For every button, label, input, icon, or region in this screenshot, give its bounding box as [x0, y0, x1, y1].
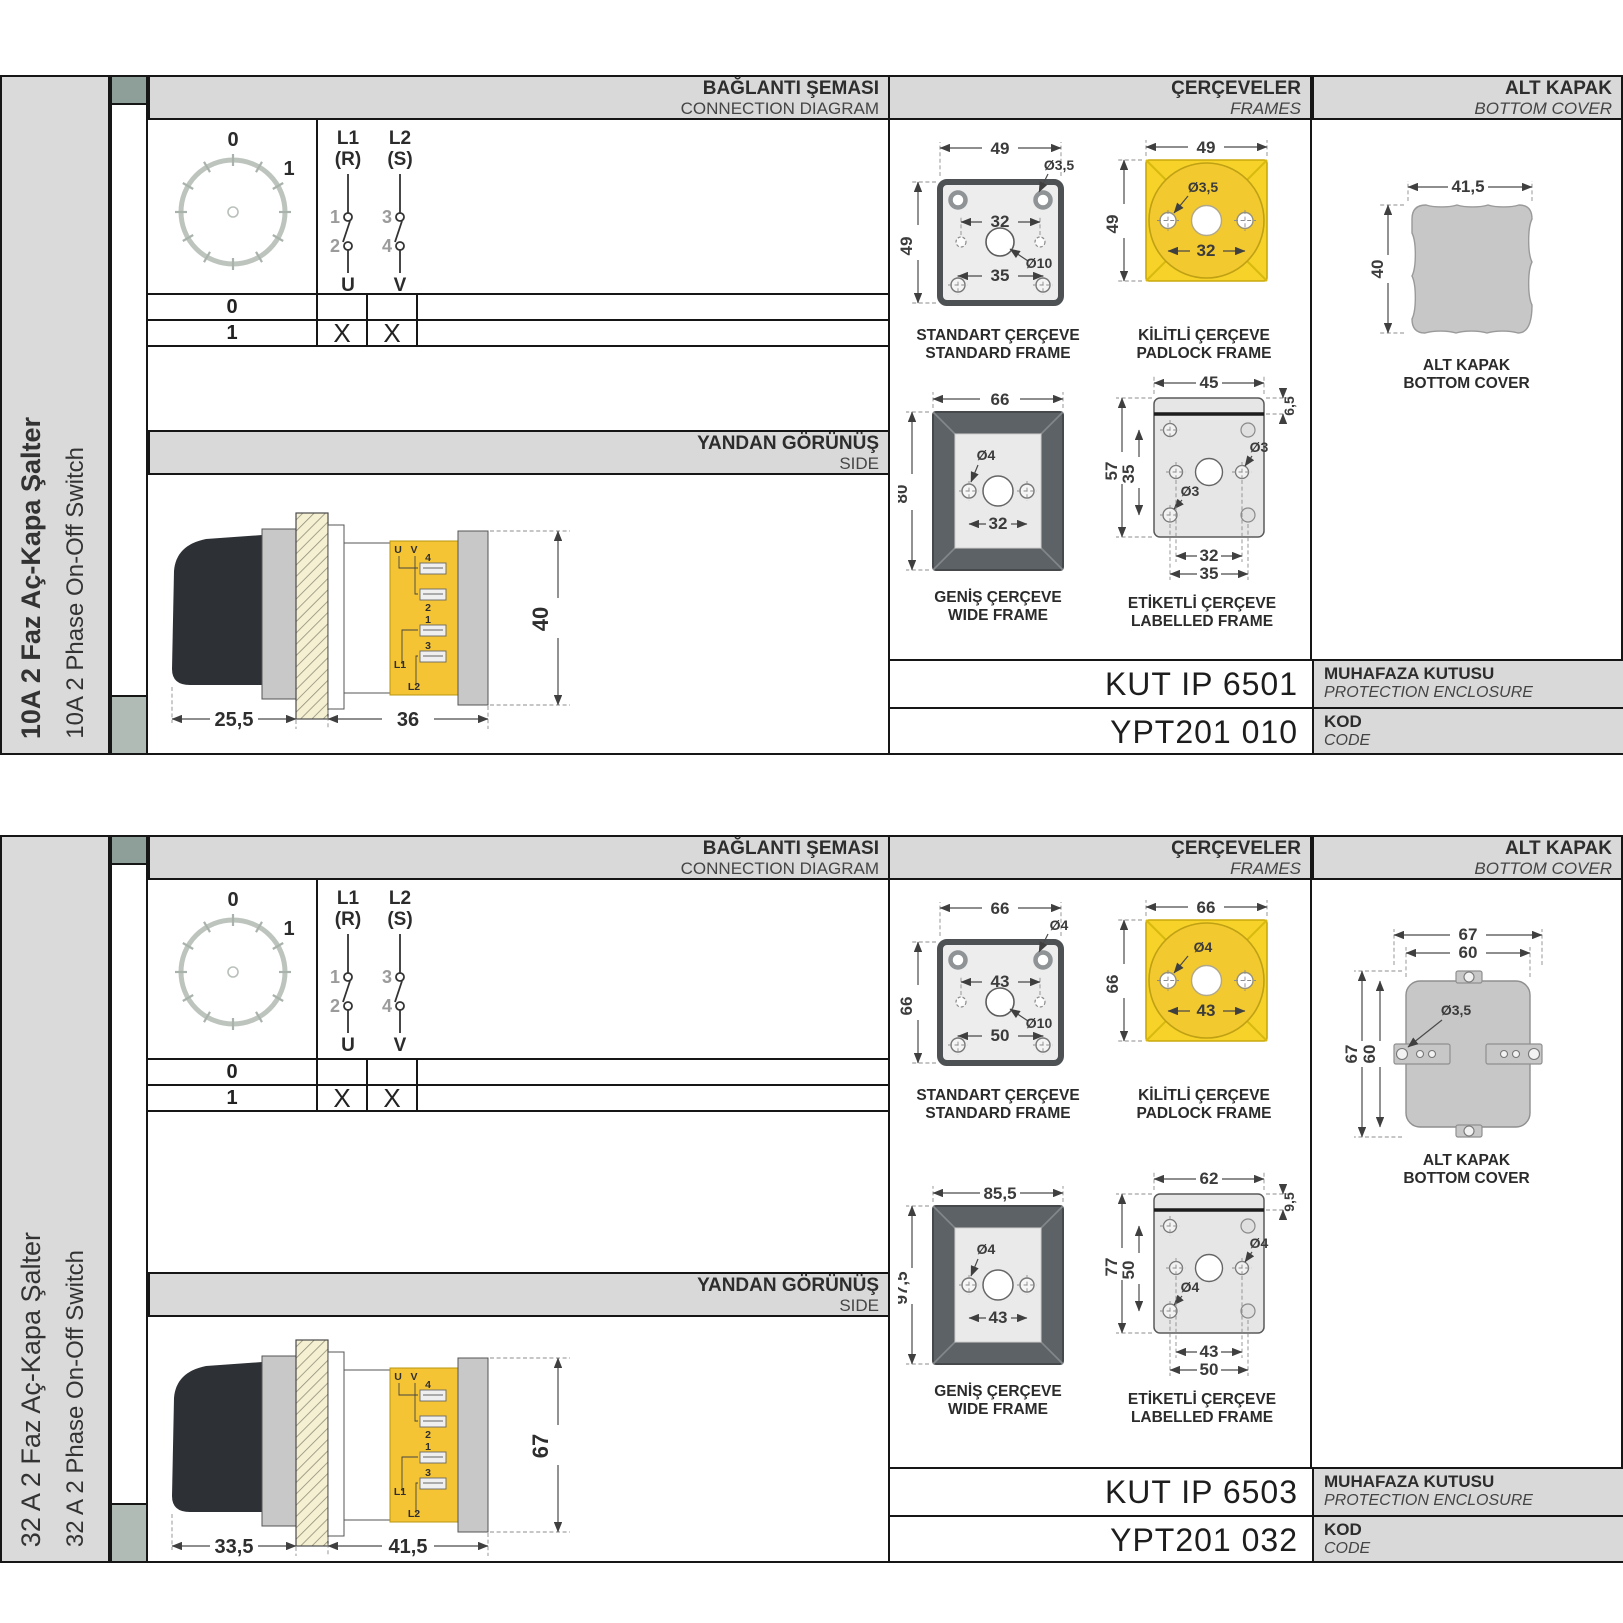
dim-height-outer: 67 — [1342, 1045, 1361, 1064]
caption-turkish: ETİKETLİ ÇERÇEVE — [1102, 1391, 1302, 1409]
position-cell: 1 — [148, 321, 318, 345]
bottom-cover-drawing: 41,5 40 — [1342, 175, 1592, 350]
header-turkish: YANDAN GÖRÜNÜŞ — [697, 1275, 879, 1296]
code-label: KOD CODE — [1312, 1517, 1623, 1563]
label-english: CODE — [1324, 1540, 1623, 1558]
figure-caption: STANDART ÇERÇEVE STANDARD FRAME — [898, 1087, 1098, 1123]
enclosure-code: KUT IP 6503 — [888, 1469, 1312, 1515]
dim-center-hole: Ø10 — [1026, 1015, 1053, 1031]
terminal-label-2: 2 — [425, 1429, 431, 1441]
header-turkish: ALT KAPAK — [1505, 78, 1612, 99]
spacer-bottom-square — [112, 1503, 146, 1561]
caption-turkish: GENİŞ ÇERÇEVE — [898, 1383, 1098, 1401]
bottom-cover-figure: 41,5 40 — [1342, 175, 1592, 393]
caption-english: WIDE FRAME — [898, 1401, 1098, 1419]
dim-inner-spacing: 43 — [1200, 1342, 1219, 1361]
table-row: 1 X X — [148, 321, 890, 345]
pole2-label: L2 — [389, 128, 411, 149]
pole1-label: L1 — [337, 128, 360, 149]
caption-turkish: KİLİTLİ ÇERÇEVE — [1104, 327, 1304, 345]
dim-depth-a: 25,5 — [215, 709, 254, 731]
header-english: SIDE — [839, 1296, 879, 1315]
pole1-sublabel: (R) — [335, 149, 361, 170]
padlock-frame-drawing: 49 49 Ø3,5 32 — [1104, 130, 1304, 320]
dim-center-hole: Ø10 — [1026, 255, 1053, 271]
terminal-number-3: 3 — [382, 207, 392, 227]
dim-outer-spacing: 50 — [1200, 1360, 1219, 1379]
label-turkish: KOD — [1324, 712, 1623, 732]
dim-width: 85,5 — [983, 1184, 1016, 1203]
mount-plate — [328, 1352, 344, 1536]
label-english: PROTECTION ENCLOSURE — [1324, 1492, 1623, 1510]
dim-height: 40 — [1368, 260, 1387, 279]
dim-hole: Ø4 — [977, 1241, 996, 1257]
dim-depth-b: 41,5 — [389, 1536, 428, 1558]
connection-diagram-header: BAĞLANTI ŞEMASI CONNECTION DIAGRAM — [148, 75, 890, 120]
figure-caption: STANDART ÇERÇEVE STANDARD FRAME — [898, 327, 1098, 363]
dim-band: 9,5 — [1281, 1192, 1297, 1212]
product-code: YPT201 010 — [888, 709, 1312, 755]
dim-inner-spacing: 32 — [1197, 241, 1216, 260]
dim-height-inner: 60 — [1360, 1045, 1379, 1064]
terminal-number-4: 4 — [382, 996, 392, 1016]
mount-plate — [328, 525, 344, 709]
dim-inner-spacing: 43 — [989, 1308, 1008, 1327]
enclosure-label: MUHAFAZA KUTUSU PROTECTION ENCLOSURE — [1312, 661, 1623, 707]
table-row: 1 X X — [148, 1086, 890, 1110]
header-english: BOTTOM COVER — [1474, 859, 1612, 878]
spacer-bottom-square — [112, 695, 146, 753]
switching-table: 0 1 X X — [148, 293, 890, 347]
dim-width-inner: 60 — [1458, 943, 1477, 962]
terminal-label-3: 3 — [425, 1467, 431, 1479]
dial-position-0: 0 — [227, 889, 238, 911]
output-v-label: V — [394, 275, 407, 295]
side-view-drawing: U V 4 2 1 3 L1 L2 67 33,5 41,5 — [150, 1300, 730, 1560]
center-hole — [1196, 459, 1223, 486]
header-turkish: BAĞLANTI ŞEMASI — [703, 838, 879, 859]
section-bottom-border — [0, 1561, 1623, 1563]
bottom-cover-area: 67 60 67 60 Ø3,5 ALT KAPAK BO — [1312, 880, 1623, 1467]
dial-ticks — [175, 154, 291, 270]
figure-caption: GENİŞ ÇERÇEVE WIDE FRAME — [898, 589, 1098, 625]
caption-english: LABELLED FRAME — [1102, 613, 1302, 631]
dial-position-1: 1 — [283, 918, 294, 940]
position-cell: 0 — [148, 1060, 318, 1084]
dim-inner-height: 35 — [1119, 465, 1138, 484]
label-english: CODE — [1324, 732, 1623, 750]
enclosure-row: KUT IP 6503 MUHAFAZA KUTUSU PROTECTION E… — [888, 1467, 1623, 1515]
section-bottom-border — [0, 753, 1623, 755]
dim-band: 6,5 — [1281, 396, 1297, 416]
pole1-label: L1 — [337, 888, 360, 909]
dim-hole-mid: Ø4 — [1250, 1235, 1269, 1251]
dial-position-0: 0 — [227, 129, 238, 151]
dim-width: 66 — [1197, 898, 1216, 917]
wide-frame-figure: 85,5 97,5 Ø4 43 GENİŞ ÇERÇEVE — [898, 1180, 1098, 1419]
dim-hole: Ø3,5 — [1188, 179, 1219, 195]
header-english: CONNECTION DIAGRAM — [681, 859, 879, 878]
terminal-label-v: V — [410, 544, 417, 556]
labelled-frame-drawing: 62 9,5 77 50 — [1102, 1164, 1307, 1384]
dim-inner-spacing: 32 — [1200, 546, 1219, 565]
padlock-frame-figure: 66 66 Ø4 43 KİLİTLİ ÇERÇEVE — [1104, 890, 1304, 1123]
dim-width: 66 — [991, 899, 1010, 918]
switch-handle — [172, 1362, 262, 1512]
label-turkish: MUHAFAZA KUTUSU — [1324, 1472, 1623, 1492]
product-section: 32 A 2 Faz Aç-Kapa Şalter 32 A 2 Phase O… — [0, 835, 1623, 1563]
dim-hole-bottom: Ø3 — [1181, 483, 1200, 499]
caption-english: STANDARD FRAME — [898, 345, 1098, 363]
bottom-cover-header: ALT KAPAK BOTTOM COVER — [1312, 835, 1623, 880]
pole2-sublabel: (S) — [387, 149, 412, 170]
header-english: SIDE — [839, 454, 879, 473]
spacer-column — [110, 75, 148, 755]
code-row: YPT201 010 KOD CODE — [888, 707, 1623, 755]
caption-turkish: STANDART ÇERÇEVE — [898, 1087, 1098, 1105]
dim-width: 62 — [1200, 1169, 1219, 1188]
switch-body — [344, 1370, 390, 1520]
product-code: YPT201 032 — [888, 1517, 1312, 1563]
switch-dial-drawing: 0 1 — [148, 120, 318, 295]
standard-frame-drawing: 49 49 Ø3,5 — [898, 130, 1098, 320]
header-turkish: ALT KAPAK — [1505, 838, 1612, 859]
v-cell — [368, 1060, 418, 1084]
dim-lower-spacing: 50 — [991, 1026, 1010, 1045]
caption-english: PADLOCK FRAME — [1104, 1105, 1304, 1123]
header-english: FRAMES — [1230, 99, 1301, 118]
center-hole — [1196, 1255, 1223, 1282]
panel-hatched — [296, 513, 328, 719]
bottom-cover-drawing: 67 60 67 60 Ø3,5 — [1342, 925, 1592, 1145]
pole1-sublabel: (R) — [335, 909, 361, 930]
figure-caption: ETİKETLİ ÇERÇEVE LABELLED FRAME — [1102, 1391, 1302, 1427]
dim-depth-b: 36 — [397, 709, 419, 731]
u-cell — [318, 295, 368, 319]
dim-width: 49 — [1197, 138, 1216, 157]
pole2-contacts — [395, 174, 404, 273]
contact-diagram-cell: L1 (R) L2 (S) 1 2 3 4 U V — [318, 880, 888, 1055]
bottom-cover-header: ALT KAPAK BOTTOM COVER — [1312, 75, 1623, 120]
caption-english: LABELLED FRAME — [1102, 1409, 1302, 1427]
terminal-label-l1: L1 — [394, 659, 406, 671]
caption-english: BOTTOM COVER — [1342, 1170, 1592, 1188]
height-dimension: 40 — [490, 531, 570, 705]
code-label: KOD CODE — [1312, 709, 1623, 755]
bottom-cover-figure: 67 60 67 60 Ø3,5 ALT KAPAK BO — [1342, 925, 1592, 1188]
terminal-label-3: 3 — [425, 640, 431, 652]
side-view-header: YANDAN GÖRÜNÜŞ SIDE — [148, 430, 890, 475]
dim-lower-spacing: 35 — [991, 266, 1010, 285]
labelled-frame-drawing: 45 6,5 57 35 — [1102, 368, 1307, 588]
dim-inner-height: 50 — [1119, 1261, 1138, 1280]
header-english: CONNECTION DIAGRAM — [681, 99, 879, 118]
pole1-contacts — [343, 934, 352, 1033]
dim-hole: Ø3,5 — [1440, 1002, 1471, 1018]
dim-corner-hole: Ø3,5 — [1044, 157, 1075, 173]
spacer-top-square — [112, 837, 146, 865]
frames-area: 49 49 Ø3,5 — [888, 120, 1312, 659]
front-plate — [262, 1356, 296, 1526]
frames-header: ÇERÇEVELER FRAMES — [888, 835, 1312, 880]
caption-turkish: KİLİTLİ ÇERÇEVE — [1104, 1087, 1304, 1105]
pole2-label: L2 — [389, 888, 411, 909]
center-hole — [986, 988, 1014, 1016]
spacer-column — [110, 835, 148, 1563]
dim-height: 67 — [528, 1434, 553, 1458]
dim-width: 45 — [1200, 373, 1219, 392]
caption-english: STANDARD FRAME — [898, 1105, 1098, 1123]
terminal-label-l1: L1 — [394, 1486, 406, 1498]
table-row: 0 — [148, 295, 890, 321]
switch-handle — [172, 535, 262, 685]
center-hole — [986, 228, 1014, 256]
dim-outer-spacing: 35 — [1200, 564, 1219, 583]
padlock-frame-figure: 49 49 Ø3,5 32 KİLİTLİ ÇERÇEVE — [1104, 130, 1304, 363]
terminal-number-2: 2 — [330, 996, 340, 1016]
standard-frame-figure: 49 49 Ø3,5 — [898, 130, 1098, 363]
figure-caption: KİLİTLİ ÇERÇEVE PADLOCK FRAME — [1104, 327, 1304, 363]
caption-english: WIDE FRAME — [898, 607, 1098, 625]
dim-depth-a: 33,5 — [215, 1536, 254, 1558]
terminal-label-4: 4 — [425, 1379, 431, 1391]
panel-hatched — [296, 1340, 328, 1546]
labelled-frame-figure: 62 9,5 77 50 — [1102, 1164, 1302, 1427]
dim-inner-spacing: 43 — [1197, 1001, 1216, 1020]
contact-diagram: L1 (R) L2 (S) 1 2 3 4 U V — [318, 880, 888, 1055]
terminal-label-u: U — [394, 1371, 402, 1383]
u-cell-x: X — [318, 321, 368, 345]
label-english: PROTECTION ENCLOSURE — [1324, 684, 1623, 702]
pole2-contacts — [395, 934, 404, 1033]
header-turkish: BAĞLANTI ŞEMASI — [703, 78, 879, 99]
side-view-drawing: U V 4 2 1 3 L1 L2 40 25,5 36 — [150, 473, 730, 733]
labelled-frame-figure: 45 6,5 57 35 — [1102, 368, 1302, 631]
center-hole — [1192, 966, 1222, 996]
terminal-label-u: U — [394, 544, 402, 556]
dial-position-1: 1 — [283, 158, 294, 180]
dim-hole: Ø4 — [1194, 939, 1213, 955]
dim-width: 49 — [991, 139, 1010, 158]
figure-caption: ALT KAPAK BOTTOM COVER — [1342, 1152, 1592, 1188]
center-hole — [1192, 206, 1222, 236]
standard-frame-figure: 66 66 Ø4 — [898, 890, 1098, 1123]
dim-width: 41,5 — [1451, 177, 1484, 196]
caption-turkish: ALT KAPAK — [1342, 357, 1592, 375]
terminal-number-3: 3 — [382, 967, 392, 987]
terminal-label-1: 1 — [425, 614, 431, 626]
connection-diagram-header: BAĞLANTI ŞEMASI CONNECTION DIAGRAM — [148, 835, 890, 880]
dial-ticks — [175, 914, 291, 1030]
height-dimension: 67 — [490, 1358, 570, 1532]
u-cell-x: X — [318, 1086, 368, 1110]
table-row: 0 — [148, 1060, 890, 1086]
terminal-number-4: 4 — [382, 236, 392, 256]
switch-dial-drawing: 0 1 — [148, 880, 318, 1055]
wide-frame-drawing: 66 80 Ø4 32 — [898, 386, 1098, 582]
contact-diagram: L1 (R) L2 (S) 1 2 3 4 U V — [318, 120, 888, 295]
frames-header: ÇERÇEVELER FRAMES — [888, 75, 1312, 120]
dim-width: 66 — [991, 390, 1010, 409]
dim-height: 66 — [1104, 975, 1122, 994]
caption-english: BOTTOM COVER — [1342, 375, 1592, 393]
position-cell: 0 — [148, 295, 318, 319]
switching-table: 0 1 X X — [148, 1058, 890, 1112]
code-row: YPT201 032 KOD CODE — [888, 1515, 1623, 1563]
cover-body — [1412, 205, 1532, 333]
left-label-bar: 10A 2 Faz Aç-Kapa Şalter 10A 2 Phase On-… — [0, 75, 110, 755]
product-title-turkish: 32 A 2 Faz Aç-Kapa Şalter — [16, 1232, 47, 1547]
dim-height: 80 — [898, 485, 911, 504]
rear-plate — [458, 531, 488, 705]
dim-inner-spacing: 32 — [989, 514, 1008, 533]
caption-turkish: GENİŞ ÇERÇEVE — [898, 589, 1098, 607]
contact-diagram-cell: L1 (R) L2 (S) 1 2 3 4 U V — [318, 120, 888, 295]
dim-width-outer: 67 — [1458, 925, 1477, 944]
switch-body — [344, 543, 390, 693]
center-hole — [983, 476, 1013, 506]
center-hole — [983, 1270, 1013, 1300]
figure-caption: KİLİTLİ ÇERÇEVE PADLOCK FRAME — [1104, 1087, 1304, 1123]
pole2-sublabel: (S) — [387, 909, 412, 930]
dim-height: 40 — [528, 607, 553, 631]
product-title-english: 32 A 2 Phase On-Off Switch — [62, 1250, 90, 1547]
bottom-cover-area: 41,5 40 — [1312, 120, 1623, 659]
terminal-label-v: V — [410, 1371, 417, 1383]
terminal-label-4: 4 — [425, 552, 431, 564]
u-cell — [318, 1060, 368, 1084]
filler-cell — [418, 295, 890, 319]
pole1-contacts — [343, 174, 352, 273]
figure-caption: ALT KAPAK BOTTOM COVER — [1342, 357, 1592, 393]
position-cell: 1 — [148, 1086, 318, 1110]
header-turkish: ÇERÇEVELER — [1171, 78, 1301, 99]
dim-hole-mid: Ø3 — [1250, 439, 1269, 455]
label-turkish: MUHAFAZA KUTUSU — [1324, 664, 1623, 684]
front-plate — [262, 529, 296, 699]
padlock-frame-drawing: 66 66 Ø4 43 — [1104, 890, 1304, 1080]
filler-cell — [418, 321, 890, 345]
dim-height: 97,5 — [898, 1271, 911, 1304]
v-cell — [368, 295, 418, 319]
header-english: BOTTOM COVER — [1474, 99, 1612, 118]
figure-caption: GENİŞ ÇERÇEVE WIDE FRAME — [898, 1383, 1098, 1419]
dim-height: 49 — [898, 237, 916, 256]
terminal-number-2: 2 — [330, 236, 340, 256]
frames-area: 66 66 Ø4 — [888, 880, 1312, 1467]
caption-english: PADLOCK FRAME — [1104, 345, 1304, 363]
wide-frame-figure: 66 80 Ø4 32 GENİŞ ÇERÇEVE — [898, 386, 1098, 625]
caption-turkish: ETİKETLİ ÇERÇEVE — [1102, 595, 1302, 613]
switch-dial-cell: 0 1 — [148, 880, 318, 1060]
output-u-label: U — [341, 275, 355, 295]
terminal-label-l2: L2 — [408, 681, 420, 693]
standard-frame-drawing: 66 66 Ø4 — [898, 890, 1098, 1080]
dim-corner-hole: Ø4 — [1050, 917, 1069, 933]
spacer-top-square — [112, 77, 146, 105]
terminal-number-1: 1 — [330, 967, 340, 987]
dim-hole: Ø4 — [977, 447, 996, 463]
header-english: FRAMES — [1230, 859, 1301, 878]
header-turkish: YANDAN GÖRÜNÜŞ — [697, 433, 879, 454]
v-cell-x: X — [368, 1086, 418, 1110]
terminal-label-l2: L2 — [408, 1508, 420, 1520]
left-label-bar: 32 A 2 Faz Aç-Kapa Şalter 32 A 2 Phase O… — [0, 835, 110, 1563]
enclosure-row: KUT IP 6501 MUHAFAZA KUTUSU PROTECTION E… — [888, 659, 1623, 707]
terminal-label-1: 1 — [425, 1441, 431, 1453]
wide-frame-drawing: 85,5 97,5 Ø4 43 — [898, 1180, 1098, 1376]
output-v-label: V — [394, 1035, 407, 1055]
enclosure-label: MUHAFAZA KUTUSU PROTECTION ENCLOSURE — [1312, 1469, 1623, 1515]
product-title-english: 10A 2 Phase On-Off Switch — [62, 447, 90, 739]
caption-turkish: ALT KAPAK — [1342, 1152, 1592, 1170]
figure-caption: ETİKETLİ ÇERÇEVE LABELLED FRAME — [1102, 595, 1302, 631]
enclosure-code: KUT IP 6501 — [888, 661, 1312, 707]
terminal-label-2: 2 — [425, 602, 431, 614]
v-cell-x: X — [368, 321, 418, 345]
output-u-label: U — [341, 1035, 355, 1055]
rear-plate — [458, 1358, 488, 1532]
filler-cell — [418, 1060, 890, 1084]
switch-dial-cell: 0 1 — [148, 120, 318, 295]
product-title-turkish: 10A 2 Faz Aç-Kapa Şalter — [16, 417, 47, 739]
product-section: 10A 2 Faz Aç-Kapa Şalter 10A 2 Phase On-… — [0, 75, 1623, 755]
filler-cell — [418, 1086, 890, 1110]
caption-turkish: STANDART ÇERÇEVE — [898, 327, 1098, 345]
dim-height: 49 — [1104, 215, 1122, 234]
header-turkish: ÇERÇEVELER — [1171, 838, 1301, 859]
terminal-number-1: 1 — [330, 207, 340, 227]
dim-hole-bottom: Ø4 — [1181, 1279, 1200, 1295]
label-turkish: KOD — [1324, 1520, 1623, 1540]
dim-height: 66 — [898, 997, 916, 1016]
